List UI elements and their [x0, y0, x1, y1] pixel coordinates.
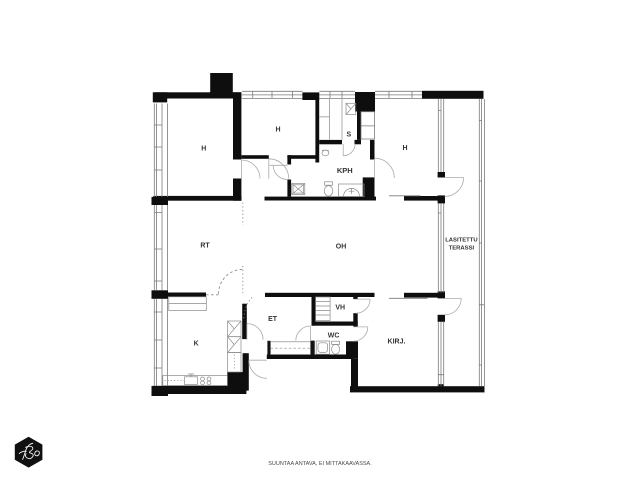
svg-text:SUUNTAA ANTAVA, EI MITTAKAAVAS: SUUNTAA ANTAVA, EI MITTAKAAVASSA. — [268, 461, 372, 467]
svg-text:H: H — [402, 145, 407, 152]
svg-text:RT: RT — [200, 243, 210, 250]
svg-text:S: S — [346, 132, 351, 139]
svg-text:LASITETTU: LASITETTU — [445, 237, 477, 243]
svg-text:KIRJ.: KIRJ. — [388, 339, 406, 346]
svg-text:H: H — [275, 126, 280, 133]
svg-text:OH: OH — [336, 244, 347, 251]
svg-text:ET: ET — [268, 316, 278, 323]
svg-text:TERASSI: TERASSI — [449, 245, 475, 251]
svg-text:H: H — [201, 146, 206, 153]
svg-text:KPH: KPH — [337, 166, 353, 175]
svg-text:WC: WC — [328, 333, 340, 340]
svg-text:VH: VH — [335, 304, 345, 311]
svg-text:K: K — [194, 341, 199, 348]
